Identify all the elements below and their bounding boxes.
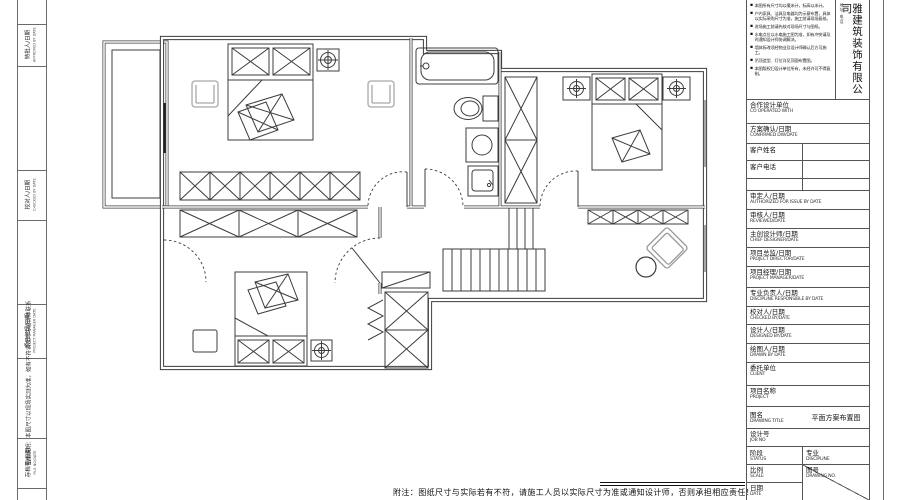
- client-name-value: [803, 144, 869, 160]
- stairs: [443, 208, 545, 291]
- armchair: [646, 227, 688, 269]
- note-text: 水电点位以水电施工图为准，如有冲突请及时通知设计师协调解决。: [755, 32, 833, 43]
- bedroom3-arc-left: [164, 240, 206, 282]
- row-project-name: 项目名称 PROJECT: [747, 386, 869, 407]
- bathroom-door: [425, 169, 463, 207]
- bedroom2-door: [540, 171, 578, 207]
- row-drawer: 绘图人/日期 DRAWN BY DATE: [747, 344, 869, 363]
- client-phone-value: [803, 161, 869, 178]
- vanity-basin: [466, 128, 498, 162]
- bedroom2-nightstand-right: [663, 77, 690, 100]
- row-reviewed: 审核人/日期 REVIEWED/DATE: [747, 210, 869, 229]
- bedroom3-lamp-icon: [311, 340, 332, 361]
- margin-divider: [17, 220, 46, 221]
- row-checker: 校对人/日期 CHECKED BY/DATE: [747, 307, 869, 325]
- note-text: 本图所有尺寸均以毫米计，标高以米计。: [755, 3, 827, 8]
- title-block: ▪本图所有尺寸均以毫米计，标高以米计。 ▪户内家具、洁具及电器均为示意布置，具体…: [746, 0, 870, 500]
- bedroom2-wardrobe: [505, 77, 537, 203]
- row-chief-designer: 主创设计师/日期 CHIEF DESIGNER/DATE: [747, 229, 869, 248]
- row-scale-date-no: 比例 SCALE 日期 DATE 图号 DRAWING NO.: [747, 465, 869, 500]
- bullet-icon: ▪: [750, 45, 753, 56]
- notes-box: ▪本图所有尺寸均以毫米计，标高以米计。 ▪户内家具、洁具及电器均为示意布置，具体…: [747, 0, 869, 100]
- row-discipline-resp: 专业负责人/日期 DISCIPLINE RESPONSIBLE BY DATE: [747, 288, 869, 307]
- margin-annotation: 图纸说明：本图尺寸以现场实测为准，如有不符请及时与设计师联系: [22, 275, 34, 490]
- company-contact: 地址 电话: [836, 0, 845, 99]
- drawing-title-value: 平面方案布置图: [803, 413, 869, 423]
- bedroom3-wardrobe-top: [180, 210, 357, 237]
- bullet-icon: ▪: [750, 24, 753, 29]
- bullet-icon: ▪: [750, 58, 753, 63]
- interior-walls: [162, 38, 705, 294]
- notes-list: ▪本图所有尺寸均以毫米计，标高以米计。 ▪户内家具、洁具及电器均为示意布置，具体…: [747, 0, 835, 99]
- outer-walls: [162, 38, 705, 368]
- company-column: 地址 电话 雅建筑装饰有限公司: [835, 0, 869, 99]
- drawing-sheet: { "sheet": { "type": "residential floor …: [0, 0, 900, 500]
- margin-line-outer: [17, 0, 18, 500]
- toilet: [454, 96, 498, 121]
- margin-cell-approver: 特批人/日期APPROVED BY DATE: [17, 24, 46, 66]
- bedroom3-wardrobe-right: [368, 292, 428, 368]
- margin-sublabel: APPROVED BY DATE: [33, 28, 37, 63]
- row-co-operated: 合作设计单位 CO OPERATED WITH: [747, 100, 869, 124]
- row-blank: [747, 179, 869, 191]
- bedroom1-wardrobe: [180, 172, 360, 200]
- bedroom2-nightstand-left: [563, 77, 590, 100]
- row-client-phone: 客户电话: [747, 161, 869, 179]
- shoe-cabinet: [382, 272, 430, 288]
- bedroom1-ceiling-lamp-icon: [317, 49, 339, 71]
- bullet-icon: ▪: [750, 11, 753, 22]
- bottom-note: 附注：图纸尺寸与实际若有不符，请施工人员以实际尺寸为准或通知设计师，否则承担相应…: [393, 487, 754, 498]
- row-client-org: 委托单位 CLIENT: [747, 363, 869, 386]
- bullet-icon: ▪: [750, 66, 753, 77]
- hall-cabinet: [588, 210, 688, 224]
- margin-label: 特批人/日期: [26, 28, 33, 63]
- row-job-no: 设计号 JOB NO: [747, 429, 869, 447]
- company-name: 雅建筑装饰有限公司: [845, 0, 862, 99]
- frame-thick-line: [600, 482, 745, 486]
- balcony: [104, 42, 167, 207]
- row-confirmed: 方案确认/日期 CONFIRMED DW/DATE: [747, 124, 869, 144]
- side-table: [636, 257, 656, 277]
- row-drawing-title: 图名 DRAWING TITLE 平面方案布置图: [747, 407, 869, 429]
- margin-line-inner: [46, 0, 47, 500]
- bedroom3-stool: [193, 330, 217, 352]
- bullet-icon: ▪: [750, 3, 753, 8]
- row-designer: 设计人/日期 DESIGNED BY/DATE: [747, 325, 869, 344]
- note-text: 本图版权归设计单位所有，未经许可不得复制。: [755, 66, 833, 77]
- row-project-director: 项目总监/日期 PROJECT DIRECTOR/DATE: [747, 248, 869, 267]
- margin-cell-checker: 校对人/日期CHECKED BY DATE: [17, 170, 46, 220]
- row-client-name: 客户姓名: [747, 144, 869, 161]
- note-text: 户内家具、洁具及电器均为示意布置，具体以实际采购尺寸为准，施工前请现场复核。: [755, 11, 833, 22]
- row-status-discipline: 阶段 STATUS 专业 DISCIPLINE: [747, 447, 869, 465]
- bullet-icon: ▪: [750, 32, 753, 43]
- right-frame-line: [883, 0, 884, 500]
- note-text: 进场施工前请先核对现场尺寸与图纸。: [755, 24, 823, 29]
- margin-divider: [17, 66, 46, 67]
- small-sink: [468, 166, 498, 196]
- bedroom2-bed: [592, 74, 662, 170]
- bedroom1-bed: [228, 44, 313, 140]
- margin-sublabel: CHECKED BY DATE: [33, 179, 37, 212]
- bedroom1-chairs: [192, 81, 394, 107]
- row-authorized: 审定人/日期 AUTHORIZED FOR ISSUE BY DATE: [747, 191, 869, 210]
- bedroom3-door: [335, 238, 380, 283]
- row-project-manager: 项目经理/日期 PROJECT MANAGER/DATE: [747, 267, 869, 288]
- bedroom3-bed: [235, 272, 307, 366]
- note-text: 吊顶造型、灯位详见顶面布置图。: [755, 58, 815, 63]
- drawing-no-cell: 图号 DRAWING NO.: [803, 465, 869, 500]
- note-text: 墙体拆改须经物业及设计师确认后方可施工。: [755, 45, 833, 56]
- bedroom1-door: [368, 172, 407, 207]
